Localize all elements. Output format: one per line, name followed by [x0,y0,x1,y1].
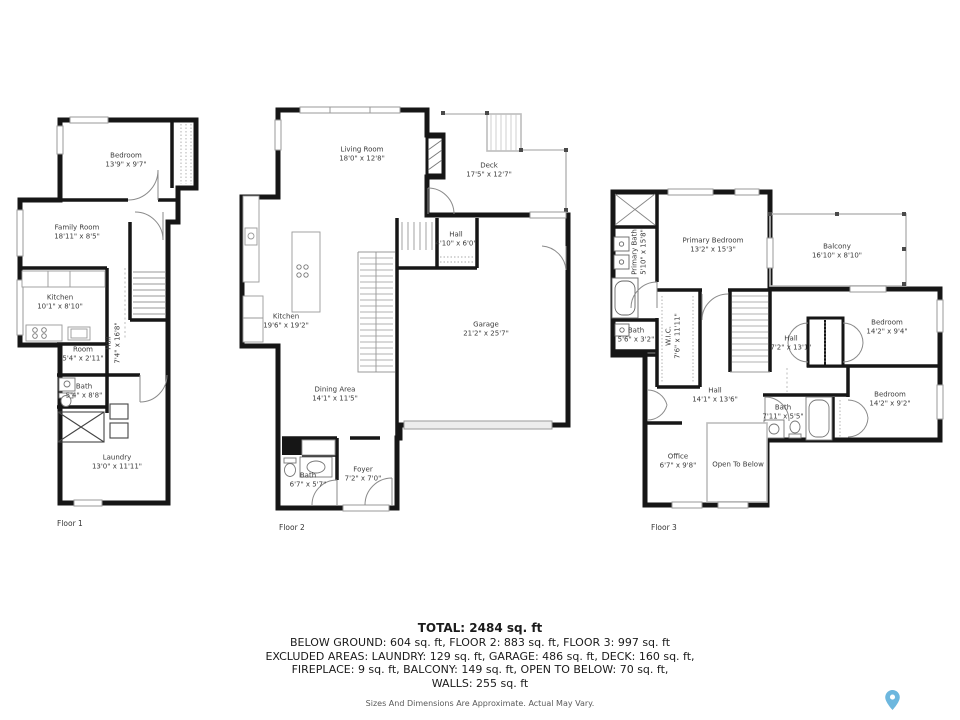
floor-areas-text: BELOW GROUND: 604 sq. ft, FLOOR 2: 883 s… [0,636,960,650]
floor-2-plan [242,107,568,511]
room-label-open-to-below: Open To Below [712,460,764,469]
room-label-kitchen-f1: Kitchen 10'1" x 8'10" [37,294,83,313]
room-label-hall-f2: Hall 4'10" x 6'0" [435,231,476,250]
room-label-garage: Garage 21'2" x 25'7" [463,321,509,340]
walls-area-text: WALLS: 255 sq. ft [0,677,960,691]
room-label-balcony: Balcony 16'10" x 8'10" [812,243,862,262]
room-label-primary-bath: Primary Bath 5'10" x 15'8" [631,229,650,275]
room-label-office: Office 6'7" x 9'8" [660,453,697,472]
room-label-family-room: Family Room 18'11" x 8'5" [54,224,100,243]
room-label-foyer: Foyer 7'2" x 7'0" [345,466,382,485]
floor-1-caption: Floor 1 [57,519,83,528]
area-summary: TOTAL: 2484 sq. ft BELOW GROUND: 604 sq.… [0,621,960,708]
room-label-wic: W.I.C. 7'6" x 11'11" [665,313,684,359]
room-label-bath-f2: Bath 6'7" x 5'7" [290,472,327,491]
total-area-text: TOTAL: 2484 sq. ft [0,621,960,635]
room-label-bath-small-f3: Bath 5'6" x 3'2" [618,327,655,346]
room-label-bedroom-se: Bedroom 14'2" x 9'2" [869,391,910,410]
excluded-areas-text-2: FIREPLACE: 9 sq. ft, BALCONY: 149 sq. ft… [0,663,960,677]
room-label-deck: Deck 17'5" x 12'7" [466,162,512,181]
location-pin-icon [885,690,900,710]
room-label-hall-f3: Hall 14'1" x 13'6" [692,387,738,406]
room-label-bath-f3: Bath 7'11" x 5'5" [762,404,803,423]
excluded-areas-text-1: EXCLUDED AREAS: LAUNDRY: 129 sq. ft, GAR… [0,650,960,664]
room-label-room-f1: Room 5'4" x 2'11" [62,346,103,365]
room-label-hall-f1: Hall 7'4" x 16'8" [105,322,124,363]
room-label-primary-bedroom: Primary Bedroom 13'2" x 15'3" [683,237,744,256]
room-label-living-room: Living Room 18'0" x 12'8" [339,146,385,165]
room-label-laundry: Laundry 13'0" x 11'11" [92,454,142,473]
floorplan-page: Bedroom 13'9" x 9'7" Family Room 18'11" … [0,0,960,720]
room-label-hall-upper-f3: Hall 7'2" x 13'1" [770,335,811,354]
room-label-bath-f1: Bath 5'4" x 8'8" [66,383,103,402]
room-label-dining-area: Dining Area 14'1" x 11'5" [312,386,358,405]
floor-3-caption: Floor 3 [651,523,677,532]
disclaimer-text: Sizes And Dimensions Are Approximate. Ac… [0,699,960,708]
room-label-kitchen-f2: Kitchen 19'6" x 19'2" [263,313,309,332]
floor-plan-canvas [0,0,960,620]
room-label-bedroom-ne: Bedroom 14'2" x 9'4" [866,319,907,338]
room-label-bedroom-f1: Bedroom 13'9" x 9'7" [105,152,146,171]
floor-2-caption: Floor 2 [279,523,305,532]
